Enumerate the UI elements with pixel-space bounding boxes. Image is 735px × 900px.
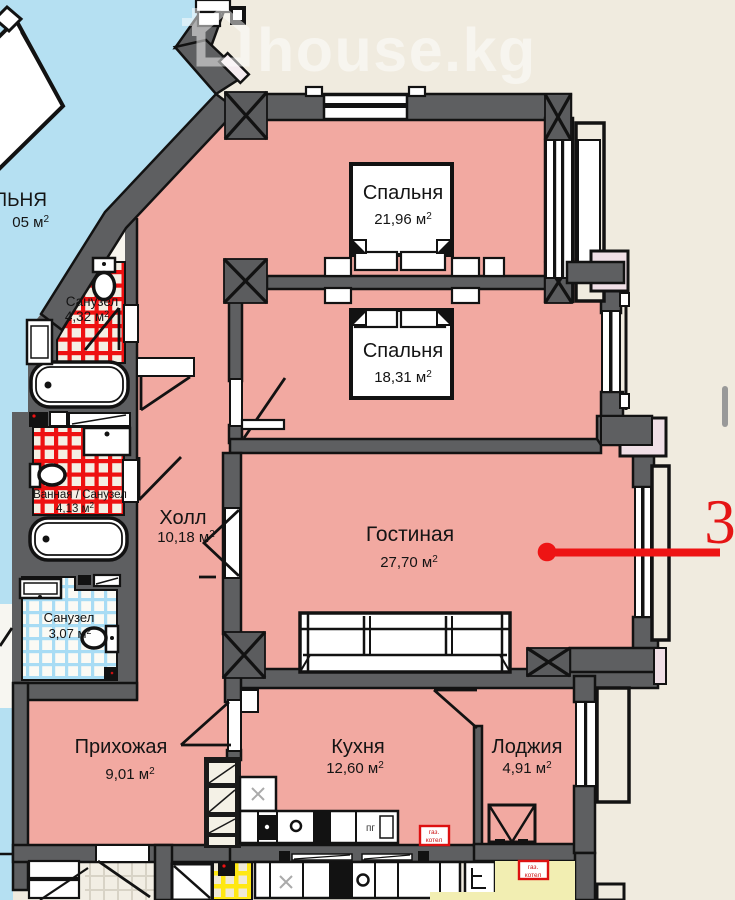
svg-text:Холл: Холл (159, 507, 206, 529)
svg-text:Лоджия: Лоджия (492, 736, 563, 758)
svg-text:4,91 м2: 4,91 м2 (502, 760, 552, 777)
svg-text:Спальня: Спальня (363, 340, 443, 362)
svg-text:Прихожая: Прихожая (75, 736, 168, 758)
svg-text:газ.: газ. (528, 864, 539, 871)
svg-text:Санузел: Санузел (44, 610, 95, 625)
svg-text:21,96 м2: 21,96 м2 (374, 211, 432, 228)
svg-text:3: 3 (704, 487, 735, 557)
svg-text:котел: котел (525, 872, 542, 879)
svg-text:10,18 м2: 10,18 м2 (157, 529, 215, 546)
svg-text:газ.: газ. (429, 829, 440, 836)
svg-text:12,60 м2: 12,60 м2 (326, 760, 384, 777)
svg-text:house.kg: house.kg (257, 16, 537, 84)
svg-text:Кухня: Кухня (331, 736, 385, 758)
svg-text:ЛЬНЯ: ЛЬНЯ (0, 190, 47, 211)
svg-text:Спальня: Спальня (363, 182, 443, 204)
svg-text:Гостиная: Гостиная (366, 523, 454, 546)
svg-text:18,31 м2: 18,31 м2 (374, 369, 432, 386)
svg-text:3,07 м2: 3,07 м2 (49, 626, 92, 641)
svg-text:4,32 м2: 4,32 м2 (65, 309, 109, 324)
svg-text:пг: пг (366, 823, 375, 834)
svg-text:Ванная / Санузел: Ванная / Санузел (33, 489, 127, 501)
svg-text:9,01 м2: 9,01 м2 (105, 766, 155, 783)
svg-text:Санузел: Санузел (66, 294, 119, 309)
svg-text:котел: котел (426, 837, 443, 844)
svg-text:27,70 м2: 27,70 м2 (380, 554, 438, 571)
svg-text:4,13 м2: 4,13 м2 (56, 501, 94, 515)
